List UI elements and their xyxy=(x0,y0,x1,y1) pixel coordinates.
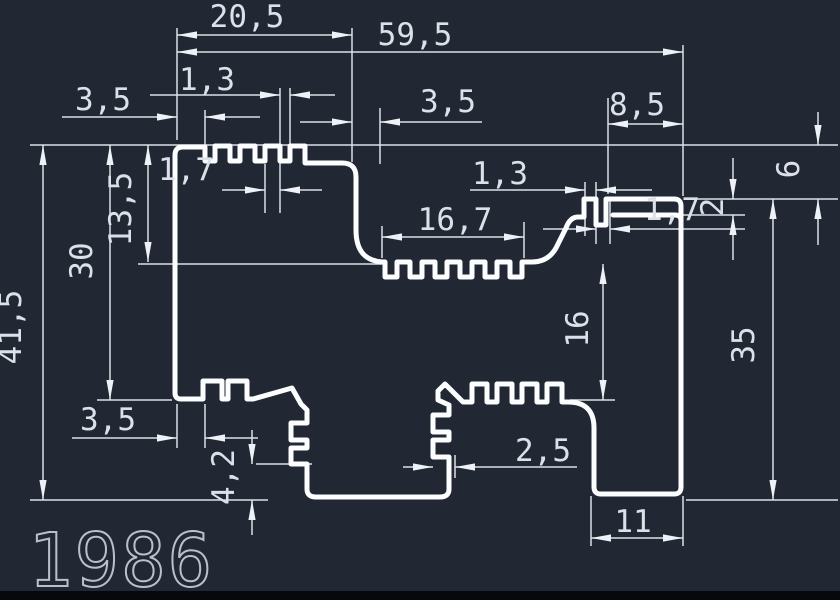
dim-arrowhead xyxy=(248,444,255,464)
dim-label-left-flange-height: 30 xyxy=(64,242,100,279)
dim-arrowhead xyxy=(248,500,255,520)
dim-arrowhead xyxy=(413,463,433,470)
dim-arrowhead xyxy=(769,199,776,219)
dim-arrowhead xyxy=(814,125,821,145)
dim-label-mid-fin-gap: 1,3 xyxy=(472,156,528,192)
dim-arrowhead xyxy=(205,113,225,120)
dim-arrowhead xyxy=(157,434,177,441)
dim-label-mid-comb-width: 16,7 xyxy=(418,202,493,238)
dim-arrowhead xyxy=(504,233,524,240)
dim-label-bottom-fin-depth: 2,5 xyxy=(515,433,571,469)
dim-arrowhead xyxy=(177,48,197,55)
dim-arrowhead xyxy=(39,145,46,165)
dim-label-lip-thickness: 2 xyxy=(695,198,731,217)
dim-arrowhead xyxy=(565,186,585,193)
dim-arrowhead xyxy=(382,233,402,240)
dim-arrowhead xyxy=(245,186,265,193)
dim-arrowhead xyxy=(814,199,821,219)
dim-arrowhead xyxy=(380,118,400,125)
dim-arrowhead xyxy=(729,179,736,199)
dim-arrowhead xyxy=(106,380,113,400)
dim-arrowhead xyxy=(663,534,683,541)
dim-label-right-step-height: 6 xyxy=(771,160,807,179)
dim-arrowhead xyxy=(39,480,46,500)
dim-arrowhead xyxy=(332,31,352,38)
dim-label-cavity-height: 16 xyxy=(560,310,596,347)
dim-label-overall-width: 59,5 xyxy=(378,17,453,53)
dim-arrowhead xyxy=(280,186,300,193)
dim-arrowhead xyxy=(144,145,151,165)
cad-viewport: 20,5 59,5 1,3 3,5 3,5 8,5 1,7 1,3 1,7 2 … xyxy=(0,0,840,600)
dim-label-top-section-width: 20,5 xyxy=(210,0,285,35)
dim-label-top-left-offset: 3,5 xyxy=(75,82,131,118)
dim-arrowhead xyxy=(332,118,352,125)
window-bottom-edge xyxy=(0,591,840,600)
dim-arrowhead xyxy=(599,264,606,284)
dim-label-mid-lip-width: 1,7 xyxy=(644,192,700,228)
dim-arrowhead xyxy=(663,48,683,55)
dim-arrowhead xyxy=(610,225,630,232)
dim-arrowhead xyxy=(769,480,776,500)
dim-arrowhead xyxy=(596,186,616,193)
dim-arrowhead xyxy=(290,91,310,98)
dim-label-upper-cavity-depth: 13,5 xyxy=(103,172,139,247)
dim-arrowhead xyxy=(157,113,177,120)
dim-arrowhead xyxy=(455,463,475,470)
dim-arrowhead xyxy=(205,434,225,441)
dim-arrowhead xyxy=(663,120,683,127)
part-number-label: 1986 xyxy=(28,518,214,600)
dim-arrowhead xyxy=(106,145,113,165)
dim-label-bottom-left-offset: 3,5 xyxy=(80,402,136,438)
dim-arrowhead xyxy=(260,91,280,98)
dim-arrowhead xyxy=(144,242,151,262)
dim-arrowhead xyxy=(591,534,611,541)
dim-label-top-step-width: 3,5 xyxy=(420,84,476,120)
dim-label-bottom-notch-height: 4,2 xyxy=(206,449,242,505)
dim-arrowhead xyxy=(177,31,197,38)
dim-arrowhead xyxy=(599,380,606,400)
dim-label-foot-width: 11 xyxy=(614,504,651,540)
drawing-canvas: 20,5 59,5 1,3 3,5 3,5 8,5 1,7 1,3 1,7 2 … xyxy=(0,0,840,600)
dim-label-overall-height: 41,5 xyxy=(0,290,29,365)
dimension-labels-layer: 20,5 59,5 1,3 3,5 3,5 8,5 1,7 1,3 1,7 2 … xyxy=(0,0,807,540)
dim-label-top-right-width: 8,5 xyxy=(609,87,665,123)
dim-arrowhead xyxy=(576,225,596,232)
dim-label-top-fin-gap: 1,3 xyxy=(179,62,235,98)
dim-arrowhead xyxy=(729,215,736,235)
dim-label-top-fin-width: 1,7 xyxy=(158,152,214,188)
dim-label-right-height: 35 xyxy=(726,326,762,363)
